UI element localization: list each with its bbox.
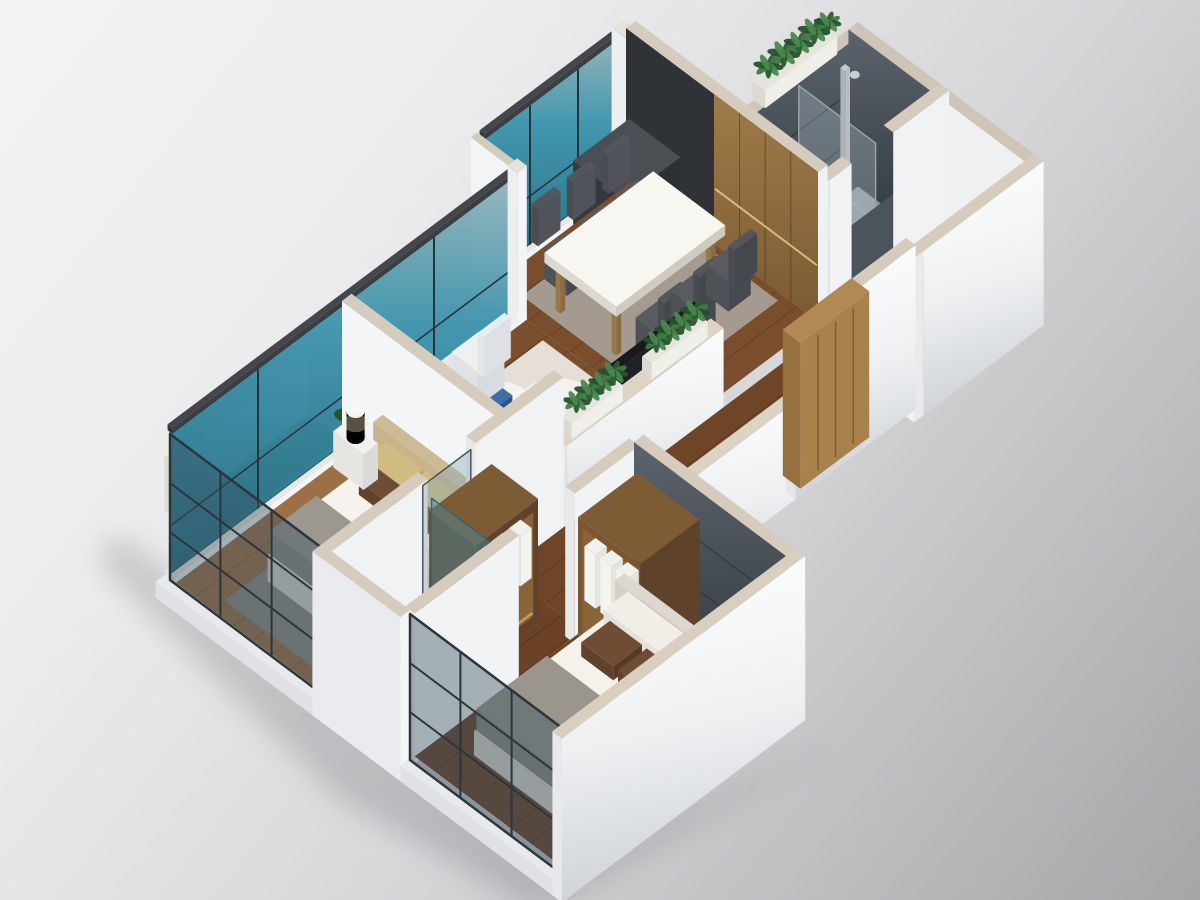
shower-head: [850, 71, 860, 79]
lamp-glow: [343, 414, 369, 432]
glass-corner-column: [508, 158, 527, 326]
scene-svg: [0, 0, 1200, 900]
apartment-render: 3D isometric apartment floor plan render: [0, 0, 1200, 900]
